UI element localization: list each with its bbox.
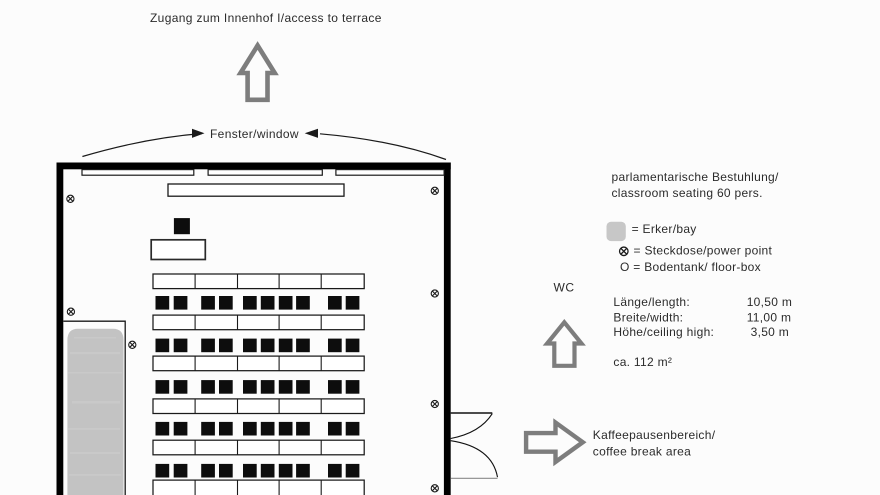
svg-text:coffee break area: coffee break area (593, 444, 691, 458)
svg-text:= Steckdose/power point: = Steckdose/power point (634, 243, 773, 257)
svg-text:Fenster/window: Fenster/window (210, 127, 299, 141)
svg-text:Höhe/ceiling high:: Höhe/ceiling high: (613, 325, 714, 339)
svg-text:11,00 m: 11,00 m (747, 310, 792, 324)
svg-text:parlamentarische Bestuhlung/: parlamentarische Bestuhlung/ (612, 170, 780, 184)
svg-text:O = Bodentank/ floor-box: O = Bodentank/ floor-box (620, 260, 761, 274)
svg-text:WC: WC (554, 281, 575, 295)
svg-text:3,50 m: 3,50 m (751, 325, 790, 339)
svg-text:classroom seating 60 pers.: classroom seating 60 pers. (612, 186, 763, 200)
svg-text:Breite/width:: Breite/width: (613, 310, 683, 324)
svg-text:Zugang zum Innenhof I/access t: Zugang zum Innenhof I/access to terrace (150, 11, 382, 25)
svg-text:= Erker/bay: = Erker/bay (632, 222, 697, 236)
svg-text:Länge/length:: Länge/length: (613, 295, 690, 309)
svg-text:ca. 112 m²: ca. 112 m² (613, 355, 672, 369)
svg-text:10,50 m: 10,50 m (747, 295, 792, 309)
svg-text:Kaffeepausenbereich/: Kaffeepausenbereich/ (593, 428, 716, 442)
